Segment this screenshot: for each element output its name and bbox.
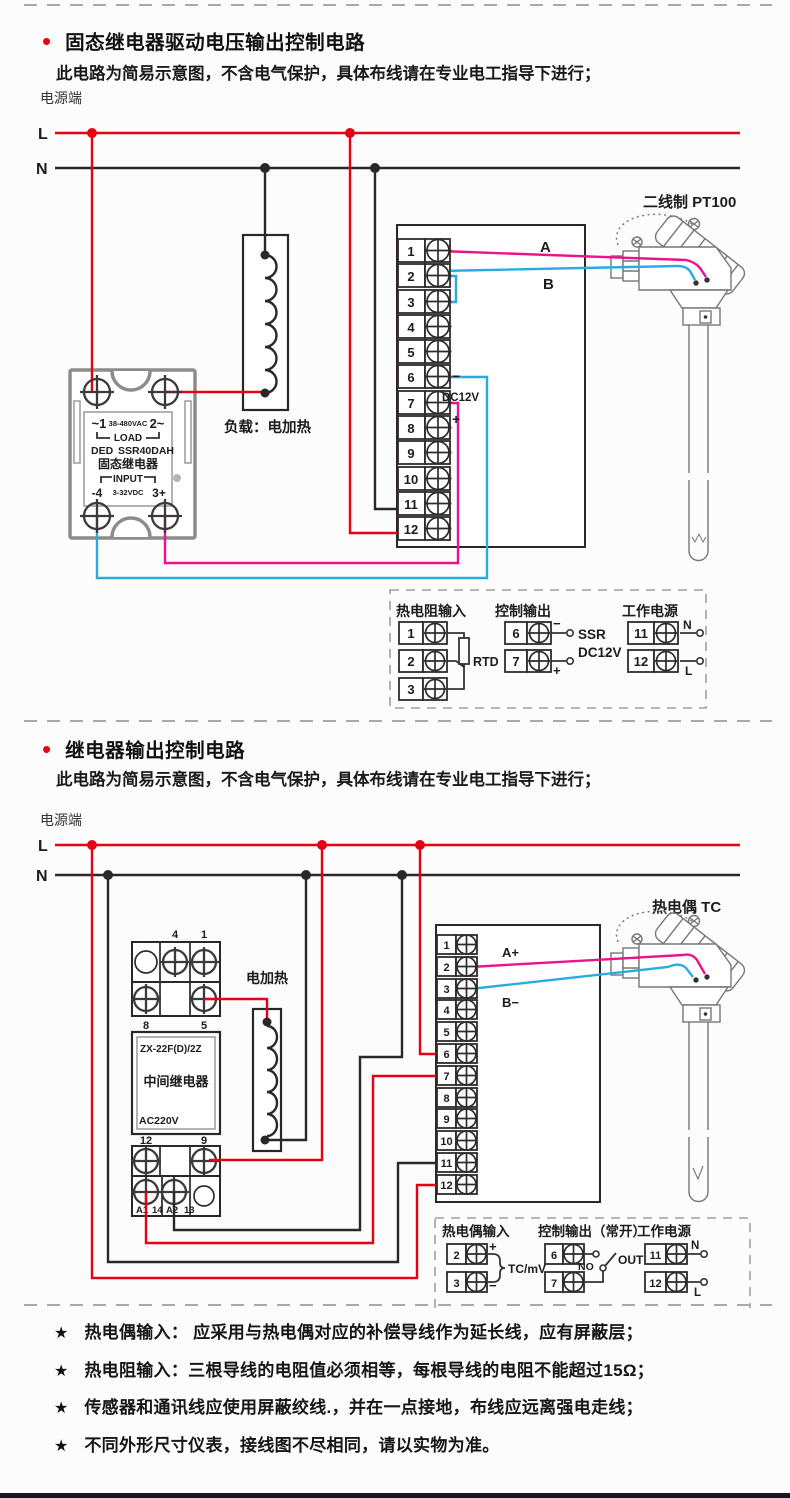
terminal-row: 6 <box>398 365 452 388</box>
terminal-row: 3 <box>437 979 478 999</box>
svg-text:11: 11 <box>634 626 648 641</box>
dc12v-out-label: DC12V <box>578 645 622 660</box>
note-row: ★传感器和通讯线应使用屏蔽绞线.，并在一点接地，布线应远离强电走线； <box>54 1393 654 1418</box>
terminal-row: 3 <box>398 290 452 313</box>
legend-ctrl-title: 控制输出（常开） <box>538 1223 646 1239</box>
svg-text:A2: A2 <box>166 1205 178 1216</box>
pt100-sensor: 二线制 PT100 <box>611 193 748 561</box>
svg-text:6: 6 <box>443 1049 449 1061</box>
legend-box-2: 热电偶输入 2 3 + − TC/mV 控制输出（常开） 6 7 NO OUT … <box>435 1218 750 1308</box>
legend-box-1: 热电阻输入 1 2 3 RTD 控制输出 6 7 − + SSR DC12V 工… <box>390 590 706 708</box>
svg-text:2: 2 <box>407 269 414 284</box>
svg-text:1: 1 <box>201 929 207 941</box>
svg-text:7: 7 <box>407 396 414 411</box>
section1-title: 固态继电器驱动电压输出控制电路 <box>65 26 365 55</box>
section2-power-label: 电源端 <box>40 810 82 830</box>
svg-text:L: L <box>38 126 48 143</box>
no-label: NO <box>578 1261 594 1273</box>
svg-text:12: 12 <box>440 1180 452 1192</box>
power-rail-n: N <box>36 868 740 885</box>
svg-text:14: 14 <box>152 1205 163 1216</box>
svg-text:1: 1 <box>407 244 414 259</box>
svg-text:10: 10 <box>404 472 418 487</box>
svg-text:2~: 2~ <box>150 416 165 431</box>
section-divider <box>24 720 772 722</box>
notes-divider <box>24 1304 772 1306</box>
terminal-row: 6 <box>437 1044 478 1064</box>
svg-text:8: 8 <box>143 1020 149 1032</box>
svg-text:13: 13 <box>184 1205 195 1216</box>
note-row: ★热电阻输入：三根导线的电阻值必须相等，每根导线的电阻不能超过15Ω； <box>54 1356 654 1381</box>
svg-text:1: 1 <box>443 940 449 952</box>
svg-text:1: 1 <box>407 626 414 641</box>
plus-label: + <box>452 411 460 427</box>
svg-text:7: 7 <box>512 654 519 669</box>
intermediate-relay: 4 1 8 5 ZX-22F(D)/2Z 中间继电器 AC220V 12 9 <box>131 929 220 1216</box>
wire-b-label: B− <box>502 995 519 1010</box>
svg-text:~1: ~1 <box>92 416 107 431</box>
svg-text:−: − <box>489 1278 497 1293</box>
svg-text:8: 8 <box>443 1093 449 1105</box>
heater-label: 电加热 <box>246 970 288 986</box>
svg-text:+: + <box>553 663 561 678</box>
bullet-icon: • <box>42 31 51 51</box>
relay-circuit-diagram: L N 4 1 8 5 ZX-22F(D)/2Z 中间继电器 <box>0 830 790 1308</box>
svg-text:12: 12 <box>634 654 648 669</box>
svg-text:N: N <box>36 161 48 178</box>
heater-load: 负载：电加热 <box>224 235 311 436</box>
terminal-row: 2 <box>437 957 478 977</box>
star-icon: ★ <box>54 1436 68 1456</box>
wire-b-label: B <box>543 276 554 293</box>
legend-ctrl-title: 控制输出 <box>495 603 551 619</box>
svg-text:5: 5 <box>201 1020 207 1032</box>
terminal-row: 4 <box>437 1000 478 1020</box>
terminal-row: 5 <box>437 1022 478 1042</box>
terminal-row: 12 <box>398 517 452 540</box>
load-label: 负载：电加热 <box>224 418 311 436</box>
svg-text:3: 3 <box>443 984 449 996</box>
svg-text:LOAD: LOAD <box>114 433 142 444</box>
svg-text:10: 10 <box>440 1136 452 1148</box>
svg-text:L: L <box>694 1287 701 1299</box>
svg-text:2: 2 <box>407 654 414 669</box>
power-rail-l: L <box>38 126 740 143</box>
wire-a-label: A+ <box>502 945 519 960</box>
svg-text:AC220V: AC220V <box>139 1115 179 1127</box>
section2-subtitle: 此电路为简易示意图，不含电气保护，具体布线请在专业电工指导下进行； <box>56 766 601 790</box>
dc12v-label: DC12V <box>442 392 479 404</box>
wire-a-label: A <box>540 239 551 256</box>
minus-label: − <box>452 368 460 384</box>
legend-power-title: 工作电源 <box>637 1223 691 1239</box>
bottom-bar <box>0 1493 790 1498</box>
top-dashed-divider <box>24 4 772 6</box>
svg-text:38-480VAC: 38-480VAC <box>109 419 148 428</box>
terminal-row: 2 <box>398 264 452 287</box>
legend-rtd-title: 热电阻输入 <box>396 603 466 619</box>
terminal-row: 1 <box>398 239 452 262</box>
terminal-row: 9 <box>398 441 452 464</box>
svg-text:11: 11 <box>441 1158 453 1170</box>
svg-text:6: 6 <box>407 370 414 385</box>
note-row: ★热电偶输入： 应采用与热电偶对应的补偿导线作为延长线，应有屏蔽层； <box>54 1318 654 1343</box>
ssr-out-label: SSR <box>578 627 606 642</box>
svg-text:L: L <box>38 838 48 855</box>
svg-text:2: 2 <box>453 1250 459 1262</box>
legend-tc-title: 热电偶输入 <box>442 1223 510 1239</box>
bullet-icon: • <box>42 739 51 759</box>
svg-text:12: 12 <box>404 522 418 537</box>
svg-text:SSR40DAH: SSR40DAH <box>118 445 174 457</box>
ssr-circuit-diagram: L N ~1 38-480VAC 2~ LOAD DED SSR40DAH <box>0 105 790 721</box>
svg-text:11: 11 <box>650 1250 662 1262</box>
svg-text:6: 6 <box>512 626 519 641</box>
svg-text:7: 7 <box>551 1278 557 1290</box>
svg-text:ZX-22F(D)/2Z: ZX-22F(D)/2Z <box>140 1044 202 1055</box>
svg-text:6: 6 <box>551 1250 557 1262</box>
terminal-row: 8 <box>398 416 452 439</box>
svg-text:4: 4 <box>172 929 179 941</box>
svg-text:L: L <box>685 664 692 678</box>
wiring-diagram-page: • 固态继电器驱动电压输出控制电路 此电路为简易示意图，不含电气保护，具体布线请… <box>0 0 790 1498</box>
terminal-row: 11 <box>398 492 452 515</box>
terminal-row: 9 <box>437 1109 478 1129</box>
sensor-label: 二线制 PT100 <box>643 193 736 211</box>
terminal-row: 10 <box>437 1131 478 1151</box>
note-row: ★不同外形尺寸仪表，接线图不尽相同，请以实物为准。 <box>54 1431 654 1456</box>
ssr-device: ~1 38-480VAC 2~ LOAD DED SSR40DAH 固态继电器 … <box>70 370 195 538</box>
terminal-row: 10 <box>398 467 452 490</box>
power-rail-l: L <box>38 838 740 855</box>
star-icon: ★ <box>54 1361 68 1381</box>
svg-text:3+: 3+ <box>152 486 166 500</box>
svg-text:12: 12 <box>649 1278 661 1290</box>
footnotes: ★热电偶输入： 应采用与热电偶对应的补偿导线作为延长线，应有屏蔽层； ★热电阻输… <box>54 1318 654 1468</box>
terminal-row: 12 <box>437 1175 478 1195</box>
out-label: OUT <box>618 1253 644 1267</box>
terminal-row: 4 <box>398 315 452 338</box>
heater-load: 电加热 <box>246 970 288 1151</box>
svg-text:11: 11 <box>404 497 418 512</box>
svg-text:3: 3 <box>453 1278 459 1290</box>
terminal-row: 1 <box>437 935 478 955</box>
svg-text:N: N <box>36 868 48 885</box>
svg-text:−: − <box>553 616 561 631</box>
ssr-led <box>173 474 181 482</box>
svg-text:3-32VDC: 3-32VDC <box>113 488 144 497</box>
svg-text:中间继电器: 中间继电器 <box>143 1074 209 1089</box>
svg-text:+: + <box>489 1239 497 1254</box>
terminal-row: 11 <box>437 1153 478 1173</box>
svg-text:4: 4 <box>443 1005 450 1017</box>
terminal-row: 7 <box>437 1066 478 1086</box>
svg-text:5: 5 <box>443 1027 449 1039</box>
section1-header: • 固态继电器驱动电压输出控制电路 <box>42 26 365 55</box>
svg-text:DED: DED <box>91 445 114 457</box>
power-rail-n: N <box>36 161 740 178</box>
svg-text:N: N <box>683 618 692 632</box>
svg-text:N: N <box>691 1240 699 1252</box>
star-icon: ★ <box>54 1398 68 1418</box>
rtd-label: RTD <box>473 655 499 669</box>
svg-text:7: 7 <box>443 1071 449 1083</box>
svg-text:5: 5 <box>407 345 414 360</box>
section2-title: 继电器输出控制电路 <box>65 734 245 763</box>
svg-text:8: 8 <box>407 421 414 436</box>
svg-text:3: 3 <box>407 295 414 310</box>
svg-text:4: 4 <box>407 320 415 335</box>
sensor-label: 热电偶 TC <box>652 898 721 916</box>
tcmv-label: TC/mV <box>508 1262 546 1276</box>
section2-header: • 继电器输出控制电路 <box>42 734 245 763</box>
svg-text:9: 9 <box>443 1114 449 1126</box>
section1-subtitle: 此电路为简易示意图，不含电气保护，具体布线请在专业电工指导下进行； <box>56 60 601 84</box>
svg-text:-4: -4 <box>92 486 103 500</box>
svg-text:2: 2 <box>443 962 449 974</box>
svg-text:9: 9 <box>407 446 414 461</box>
legend-power-title: 工作电源 <box>622 603 678 619</box>
svg-text:3: 3 <box>407 682 414 697</box>
tc-sensor: 热电偶 TC <box>611 898 748 1202</box>
svg-text:固态继电器: 固态继电器 <box>98 456 159 471</box>
svg-text:INPUT: INPUT <box>113 474 143 485</box>
terminal-row: 5 <box>398 340 452 363</box>
terminal-row: 8 <box>437 1088 478 1108</box>
star-icon: ★ <box>54 1323 68 1343</box>
